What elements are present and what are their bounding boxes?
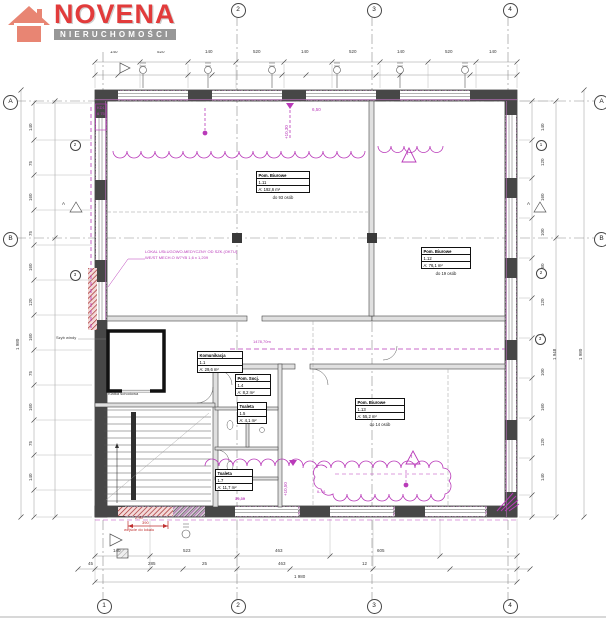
dim-label: 140 <box>541 123 546 131</box>
room-label-toilet-1: Toaleta 1.5 A: 4,1 m² <box>237 402 267 424</box>
dim-label: 520 <box>445 50 453 55</box>
window-openings <box>95 91 517 517</box>
grid-bubble-bottom-2: 2 <box>231 599 246 614</box>
dim-label: 463 <box>275 549 283 554</box>
stairs-label: Klatka schodowa <box>108 392 138 396</box>
warning-icon: ! <box>411 455 413 460</box>
dim-label: 160 <box>29 263 34 271</box>
dim-label: 140 <box>113 549 121 554</box>
dim-label: 140 <box>489 50 497 55</box>
dim-label: 140 <box>301 50 309 55</box>
room-label-1-12: Pom. Biurowe 1.12 A: 76,1 m² do 19 osób <box>421 247 471 276</box>
grid-bubble-top-3: 3 <box>367 3 382 18</box>
level-annotation: +10,30 <box>285 125 290 139</box>
grid-bubble-left-B: B <box>3 232 18 247</box>
door-tag-value: 6 75 <box>97 112 105 116</box>
entrance-marking <box>118 507 173 516</box>
unit-note-line2: WE/ST MECH.O W7YB 1,6 x 1,209 <box>145 256 208 260</box>
grid-bubble-top-4: 4 <box>503 3 518 18</box>
grid-bubble-bottom-1: 1 <box>97 599 112 614</box>
dim-label: 75 <box>29 161 34 166</box>
warning-icon: ! <box>407 152 409 157</box>
dim-label: 75 <box>29 231 34 236</box>
entrance-note: wejście do lokalu <box>124 528 154 532</box>
dim-total-label: 1 980 <box>16 339 21 350</box>
dim-label: 120 <box>541 158 546 166</box>
section-marker-label: A <box>62 202 65 207</box>
dim-label: 140 <box>205 50 213 55</box>
room-label-toilet-2: Toaleta 1.7 A: 11,7 m² <box>215 469 253 491</box>
dim-label: 120 <box>541 438 546 446</box>
dim-label: 120 <box>29 298 34 306</box>
house-icon <box>6 2 52 51</box>
exterior-walls <box>88 90 517 517</box>
dim-label: 523 <box>183 549 191 554</box>
element-tag: 3 <box>535 334 546 345</box>
dim-label: 285 <box>148 562 156 567</box>
grid-bubble-bottom-3: 3 <box>367 599 382 614</box>
corridor-length-annotation: 1478,70m <box>253 340 271 344</box>
annotation-clouds <box>91 103 519 520</box>
dim-label: 520 <box>349 50 357 55</box>
grid-bubble-right-B: B <box>594 232 606 247</box>
dim-label: 520 <box>253 50 261 55</box>
level-annotation: +10,50 <box>284 482 289 496</box>
room-label-1-11: Pom. Biurowe 1.11 A: 192,6 m² do 93 osób <box>256 171 310 200</box>
dim-label: 75 <box>29 371 34 376</box>
dim-label: 12 <box>362 562 367 567</box>
dim-total-label: 1 980 <box>294 575 305 580</box>
elevator-shaft <box>78 331 164 391</box>
novena-logo: NOVENA NIERUCHOMOŚCI <box>4 2 178 51</box>
dim-label: 140 <box>29 123 34 131</box>
dim-label: 120 <box>541 298 546 306</box>
grid-bubble-right-A: A <box>594 95 606 110</box>
door-tag: KD1 <box>97 106 105 110</box>
dim-label: 140 <box>541 473 546 481</box>
element-tag: 2 <box>70 140 81 151</box>
cloud-label: IL.91 <box>317 490 326 494</box>
entrance-dim-value: 390 <box>142 521 149 525</box>
window-tag-icons <box>140 63 469 538</box>
dim-label: 75 <box>29 441 34 446</box>
floor-plan-sheet: NOVENA NIERUCHOMOŚCI 1 2 3 4 1 2 3 4 A B… <box>0 0 606 620</box>
detail-marker-icons <box>70 63 546 558</box>
revision-value: 39,39 <box>235 497 245 501</box>
dim-total-label: 1 980 <box>579 349 584 360</box>
section-marker-label: A <box>527 202 530 207</box>
dim-label: 140 <box>29 473 34 481</box>
interior-walls <box>95 101 505 507</box>
dim-label: 160 <box>29 193 34 201</box>
span-annotation: 6,50 <box>312 108 321 113</box>
dim-total-label: 1 948 <box>553 349 558 360</box>
shaft-label: Szyb windy <box>56 336 76 340</box>
staircase <box>104 410 211 503</box>
brand-name: NOVENA <box>54 2 176 28</box>
dim-label: 25 <box>202 562 207 567</box>
element-tag: 2 <box>536 268 547 279</box>
room-label-social: Pom. Socj. 1.4 A: 8,2 m² <box>235 374 271 396</box>
dim-label: 100 <box>541 368 546 376</box>
unit-note-line1: LOKAL USŁUGOWO-MEDYCZNY OD SZK.(OKTU) <box>145 250 237 254</box>
grid-bubble-left-A: A <box>3 95 18 110</box>
red-wall-marking <box>88 268 97 330</box>
dim-label: 160 <box>29 333 34 341</box>
dim-label: 160 <box>29 403 34 411</box>
dim-label: 463 <box>278 562 286 567</box>
room-label-corridor: Komunikacja 1.1 A: 29,6 m² <box>197 351 243 373</box>
floor-plan-linework <box>0 0 606 620</box>
element-tag: 1 <box>536 140 547 151</box>
brand-tagline: NIERUCHOMOŚCI <box>54 29 176 41</box>
element-tag: 3 <box>70 270 81 281</box>
dim-label: 160 <box>541 403 546 411</box>
dim-label: 140 <box>397 50 405 55</box>
grid-bubble-top-2: 2 <box>231 3 246 18</box>
room-label-1-13: Pom. Biurowe 1.13 A: 55,2 m² do 14 osób <box>355 398 405 427</box>
dim-label: 100 <box>541 228 546 236</box>
dim-label: 160 <box>541 193 546 201</box>
dim-label: 45 <box>88 562 93 567</box>
grid-bubble-bottom-4: 4 <box>503 599 518 614</box>
dim-label: 605 <box>377 549 385 554</box>
